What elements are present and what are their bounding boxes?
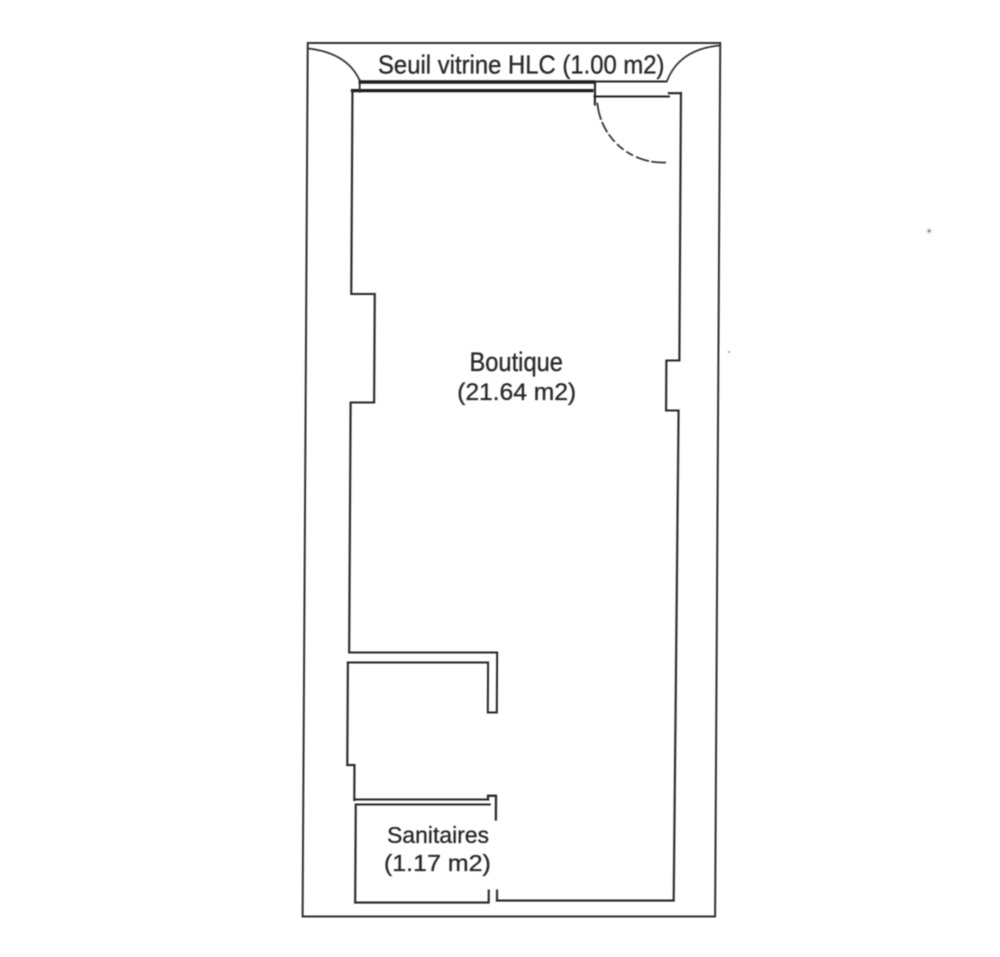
svg-text:Boutique: Boutique <box>469 347 563 377</box>
svg-text:(21.64 m2): (21.64 m2) <box>457 379 576 406</box>
svg-text:Sanitaires: Sanitaires <box>387 822 489 848</box>
svg-text:Seuil vitrine HLC (1.00 m2): Seuil vitrine HLC (1.00 m2) <box>378 50 665 80</box>
svg-text:(1.17 m2): (1.17 m2) <box>384 850 491 876</box>
